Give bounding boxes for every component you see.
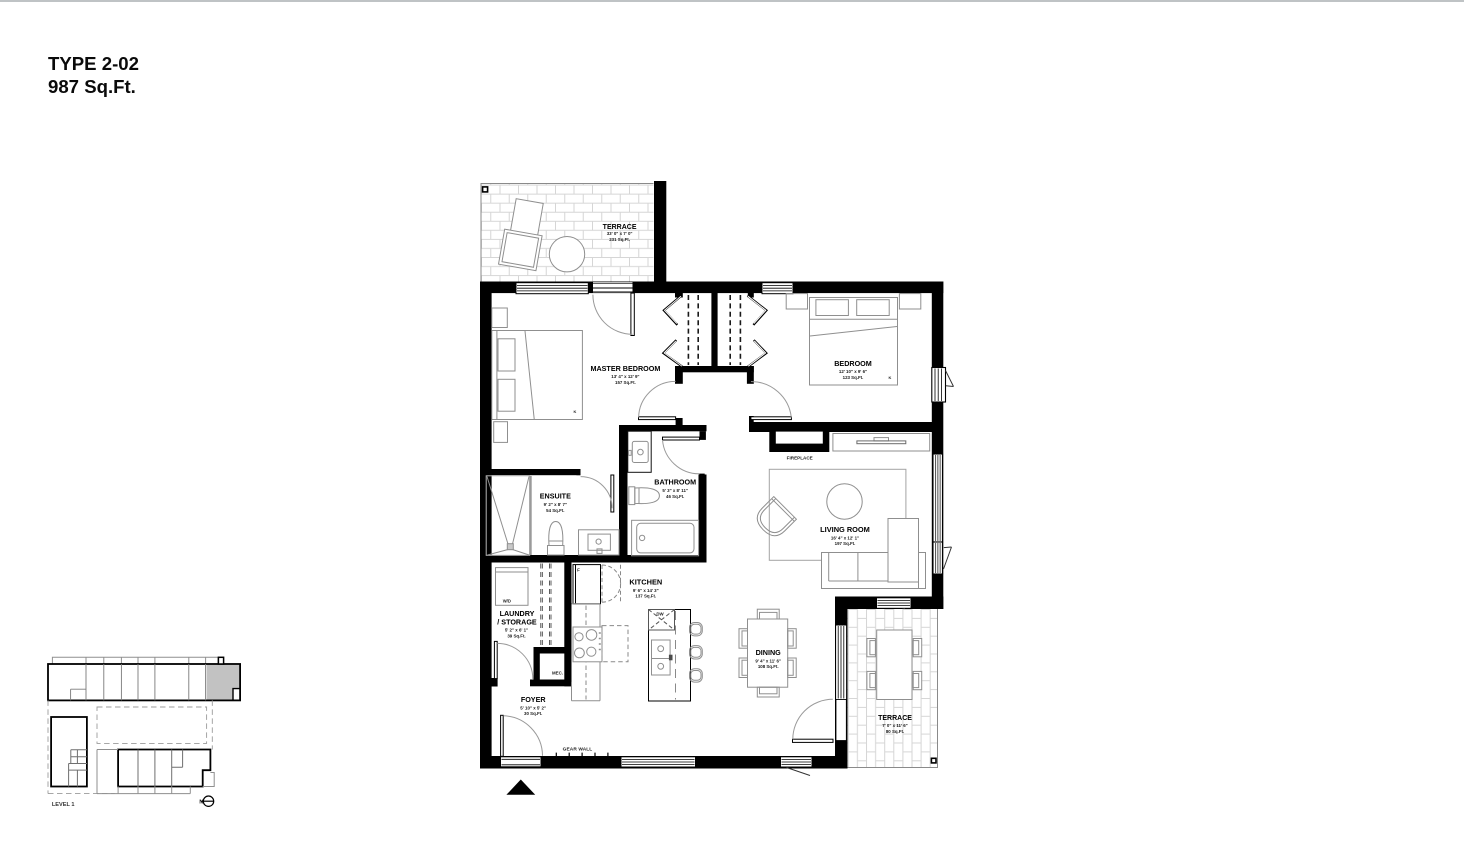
svg-text:157 Sq.Ft.: 157 Sq.Ft. — [615, 380, 636, 385]
svg-text:TERRACE: TERRACE — [878, 715, 912, 722]
svg-text:9' 2" x 8' 7": 9' 2" x 8' 7" — [544, 502, 567, 507]
svg-text:FOYER: FOYER — [521, 695, 547, 704]
svg-text:108 Sq.Ft.: 108 Sq.Ft. — [758, 664, 779, 669]
svg-text:MASTER BEDROOM: MASTER BEDROOM — [590, 364, 660, 373]
svg-text:/ STORAGE: / STORAGE — [497, 617, 537, 626]
svg-text:F: F — [577, 568, 580, 573]
svg-text:12' 10" x 9' 6": 12' 10" x 9' 6" — [839, 369, 867, 374]
svg-text:13' 4" x 12' 9": 13' 4" x 12' 9" — [611, 374, 639, 379]
svg-text:W/D: W/D — [503, 599, 511, 604]
svg-text:30 Sq.Ft.: 30 Sq.Ft. — [524, 711, 542, 716]
svg-text:137 Sq.Ft.: 137 Sq.Ft. — [635, 594, 656, 599]
svg-text:5' 2" x 6' 1": 5' 2" x 6' 1" — [505, 628, 528, 633]
svg-text:MEC.: MEC. — [552, 671, 563, 676]
svg-text:5' 10" x 5' 2": 5' 10" x 5' 2" — [520, 705, 546, 710]
svg-text:ENSUITE: ENSUITE — [540, 491, 571, 500]
svg-text:DW: DW — [656, 611, 664, 616]
svg-text:197 Sq.Ft.: 197 Sq.Ft. — [835, 541, 856, 546]
svg-text:16' 4" x 12' 1": 16' 4" x 12' 1" — [831, 535, 859, 540]
svg-text:LIVING ROOM: LIVING ROOM — [820, 525, 870, 534]
svg-text:9' 4" x 11' 6": 9' 4" x 11' 6" — [755, 658, 781, 663]
svg-text:LEVEL 1: LEVEL 1 — [52, 802, 75, 808]
svg-text:DINING: DINING — [756, 648, 782, 657]
svg-text:54 Sq.Ft.: 54 Sq.Ft. — [546, 508, 564, 513]
svg-text:33' 0" x 7' 0": 33' 0" x 7' 0" — [607, 231, 633, 236]
svg-text:BATHROOM: BATHROOM — [654, 478, 696, 487]
svg-text:46 Sq.Ft.: 46 Sq.Ft. — [666, 494, 684, 499]
svg-text:BEDROOM: BEDROOM — [834, 359, 872, 368]
svg-text:7' 0" x 11' 6": 7' 0" x 11' 6" — [882, 723, 908, 728]
svg-text:5' 3" x 8' 11": 5' 3" x 8' 11" — [662, 488, 688, 493]
svg-text:123 Sq.Ft.: 123 Sq.Ft. — [843, 375, 864, 380]
svg-text:80 Sq.Ft.: 80 Sq.Ft. — [886, 729, 904, 734]
svg-text:K: K — [574, 409, 577, 414]
svg-text:N: N — [199, 799, 203, 805]
svg-text:TERRACE: TERRACE — [603, 224, 637, 231]
svg-text:K: K — [889, 375, 892, 380]
svg-text:9' 6" x 14' 3": 9' 6" x 14' 3" — [633, 588, 659, 593]
svg-text:FIREPLACE: FIREPLACE — [787, 455, 813, 460]
svg-text:GEAR WALL: GEAR WALL — [563, 747, 593, 753]
svg-text:231 Sq.Ft.: 231 Sq.Ft. — [609, 237, 630, 242]
svg-text:KITCHEN: KITCHEN — [629, 578, 662, 587]
svg-text:39 Sq.Ft.: 39 Sq.Ft. — [507, 633, 525, 638]
